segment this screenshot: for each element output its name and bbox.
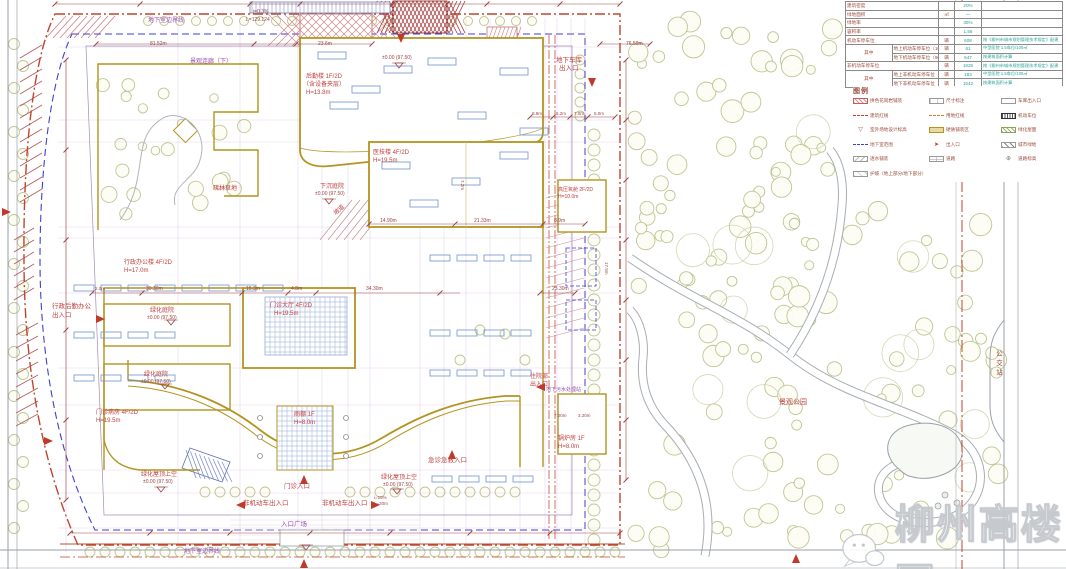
table-cell — [982, 27, 1063, 36]
entrance-arrow — [2, 208, 11, 216]
drawing-shape — [806, 65, 815, 74]
drawing-shape — [951, 266, 963, 278]
drawing-shape — [668, 17, 687, 36]
drawing-shape — [649, 527, 669, 547]
drawing-shape — [369, 142, 543, 227]
drawing-shape — [9, 347, 20, 358]
drawing-shape — [175, 547, 185, 557]
table-cell: 547 — [955, 53, 982, 62]
legend-swatch-cross — [929, 156, 944, 162]
drawing-shape — [74, 332, 94, 338]
legend-swatch-hatchred — [853, 98, 868, 104]
drawing-shape — [280, 547, 290, 557]
drawing-shape — [733, 456, 768, 491]
drawing-shape — [344, 454, 349, 459]
drawing-shape — [721, 27, 732, 38]
drawing-shape — [635, 222, 647, 234]
drawing-shape — [496, 17, 505, 26]
drawing-shape — [490, 547, 500, 557]
drawing-shape — [344, 435, 349, 440]
drawing-shape — [664, 492, 682, 510]
drawing-shape — [630, 310, 708, 556]
drawing-shape — [385, 547, 395, 557]
drawing-shape — [450, 487, 460, 497]
drawing-shape — [990, 320, 1004, 442]
legend-swatch-blueline — [853, 144, 868, 145]
drawing-shape — [405, 487, 415, 497]
drawing-shape — [712, 79, 726, 93]
drawing-shape — [936, 527, 958, 549]
drawing-shape — [277, 406, 333, 470]
drawing-shape — [9, 391, 20, 402]
legend-item-label: 室外场地设计标高 — [870, 127, 907, 133]
legend-item: 建筑红线 — [853, 113, 888, 119]
legend-item: 硬质铺装区 — [929, 127, 969, 133]
legend-swatch-diag — [1001, 142, 1016, 148]
legend-item-label: 道路 — [946, 156, 955, 162]
indicators-table: 建筑密度20%绿地面积㎡—绿地率35%容积率1.56机动车停车位辆608按《柳州… — [845, 1, 1063, 88]
legend-item-label: 机动车位 — [1018, 113, 1036, 119]
drawing-shape — [935, 503, 941, 509]
drawing-shape — [258, 435, 263, 440]
drawing-shape — [588, 159, 600, 171]
drawing-shape — [960, 410, 989, 439]
drawing-shape — [988, 464, 1008, 484]
legend-item: 机动车位 — [1001, 113, 1036, 119]
drawing-shape — [738, 344, 748, 354]
drawing-shape — [888, 423, 963, 478]
drawing-shape — [344, 416, 349, 421]
drawing-shape — [588, 369, 600, 381]
drawing-shape — [9, 127, 20, 138]
drawing-shape — [817, 454, 838, 475]
drawing-shape — [310, 547, 320, 557]
drawing-shape — [588, 279, 600, 291]
drawing-shape — [116, 164, 129, 177]
drawing-shape — [840, 530, 853, 543]
drawing-shape — [272, 17, 281, 26]
drawing-shape — [932, 254, 947, 269]
table-cell: 608 — [955, 36, 982, 45]
drawing-shape — [130, 547, 140, 557]
drawing-shape — [484, 255, 504, 261]
drawing-shape — [520, 355, 530, 365]
drawing-shape — [945, 327, 961, 343]
legend-item: ▽室外场地设计标高 — [853, 127, 907, 133]
drawing-shape — [745, 232, 767, 254]
drawing-shape — [528, 17, 537, 26]
drawing-shape — [85, 547, 95, 557]
table-cell — [939, 19, 955, 28]
drawing-shape — [355, 547, 365, 557]
drawing-shape — [9, 479, 20, 490]
drawing-shape — [465, 487, 475, 497]
drawing-shape — [575, 83, 585, 93]
drawing-shape — [575, 97, 585, 107]
drawing-shape — [9, 215, 20, 226]
table-cell: 其中 — [846, 44, 893, 61]
drawing-shape — [788, 527, 809, 548]
table-cell: — — [955, 10, 982, 19]
drawing-shape — [546, 268, 584, 278]
drawing-shape — [588, 309, 600, 321]
drawing-shape — [961, 250, 982, 271]
drawing-shape — [588, 459, 600, 471]
legend-swatch-dark — [1001, 113, 1016, 119]
drawing-shape — [190, 547, 200, 557]
drawing-shape — [958, 295, 973, 310]
table-cell: 辆 — [939, 44, 955, 53]
legend-title: 图例 — [853, 86, 1065, 96]
drawing-shape — [122, 79, 135, 92]
legend-item-label: 尺寸标注 — [946, 98, 964, 104]
drawing-shape — [588, 144, 600, 156]
drawing-shape — [835, 504, 844, 513]
legend-item-label: 出入口 — [946, 142, 960, 148]
drawing-shape — [74, 375, 94, 381]
drawing-shape — [224, 17, 233, 26]
drawing-shape — [208, 17, 217, 26]
table-cell: 按建筑面积计算 — [982, 53, 1063, 62]
legend-item-label: 道路标高 — [1018, 156, 1036, 162]
drawing-shape — [475, 547, 485, 557]
drawing-shape — [986, 347, 998, 359]
drawing-shape — [20, 129, 42, 142]
drawing-shape — [430, 255, 450, 261]
drawing-shape — [220, 547, 230, 557]
drawing-shape — [732, 27, 749, 44]
table-cell: 35% — [955, 19, 982, 28]
table-cell: 建筑密度 — [846, 2, 939, 11]
drawing-shape — [20, 45, 42, 58]
legend-swatch-glyph: ▽ — [853, 127, 868, 133]
drawing-shape — [138, 104, 147, 113]
drawing-shape — [575, 69, 585, 79]
drawing-shape — [238, 119, 251, 132]
legend-item-label: 建筑红线 — [870, 113, 888, 119]
table-cell: 地上机动车停车位（10%） — [892, 44, 939, 53]
drawing-shape — [18, 237, 29, 248]
drawing-shape — [588, 489, 600, 501]
drawing-shape — [649, 482, 666, 499]
drawing-shape — [480, 487, 490, 497]
drawing-shape — [460, 547, 470, 557]
drawing-shape — [641, 149, 657, 165]
legend-item: ➤出入口 — [929, 142, 960, 148]
legend-item-label: 护坡（地上部分/地下部分） — [870, 171, 926, 177]
site-plan: 地下室边界线i=0.3%L=129.12481.52m23.6m76.59m景观… — [0, 0, 1066, 569]
drawing-shape — [588, 354, 600, 366]
drawing-shape — [942, 492, 948, 498]
drawing-shape — [227, 181, 242, 196]
entrance-arrow — [588, 78, 596, 87]
drawing-shape — [565, 547, 575, 557]
drawing-shape — [215, 487, 225, 497]
drawing-shape — [9, 83, 20, 94]
drawing-shape — [20, 141, 42, 154]
drawing-shape — [706, 404, 722, 420]
drawing-shape — [975, 333, 986, 344]
drawing-shape — [445, 547, 455, 557]
drawing-shape — [160, 547, 170, 557]
drawing-shape — [101, 186, 117, 202]
drawing-shape — [245, 487, 255, 497]
drawing-shape — [723, 527, 732, 536]
drawing-shape — [188, 181, 203, 196]
drawing-shape — [158, 88, 169, 99]
drawing-shape — [588, 264, 600, 276]
drawing-shape — [320, 200, 352, 240]
drawing-shape — [432, 476, 452, 482]
table-cell: 1.56 — [955, 27, 982, 36]
table-cell: 辆 — [939, 70, 955, 79]
drawing-shape — [104, 304, 230, 346]
drawing-shape — [680, 272, 693, 285]
drawing-shape — [807, 238, 819, 250]
drawing-shape — [588, 129, 600, 141]
legend-item: 用地红线 — [929, 113, 964, 119]
drawing-shape — [970, 213, 992, 235]
table-cell: 61 — [955, 44, 982, 53]
legend-swatch-redline — [853, 115, 868, 116]
drawing-shape — [459, 476, 479, 482]
drawing-shape — [546, 318, 584, 328]
drawing-shape — [805, 261, 814, 270]
drawing-shape — [435, 487, 445, 497]
table-row: 绿地率35% — [846, 19, 1063, 28]
drawing-shape — [763, 452, 782, 471]
drawing-shape — [747, 385, 781, 419]
drawing-shape — [430, 330, 450, 336]
drawing-shape — [867, 523, 888, 544]
drawing-shape — [511, 255, 531, 261]
drawing-shape — [640, 201, 654, 215]
legend-swatch-check — [853, 156, 868, 162]
drawing-shape — [676, 234, 709, 267]
drawing-shape — [16, 401, 38, 413]
table-cell: 非机动车停车位 — [846, 62, 939, 71]
drawing-shape — [176, 17, 185, 26]
drawing-shape — [258, 454, 263, 459]
drawing-shape — [115, 547, 125, 557]
legend-swatch-roadel: ⊕ — [1001, 156, 1016, 162]
entrance-arrow — [371, 501, 380, 509]
drawing-shape — [510, 487, 520, 497]
table-cell: ㎡ — [939, 10, 955, 19]
drawing-shape — [9, 171, 20, 182]
legend-item: 尺寸标注 — [929, 98, 964, 104]
drawing-shape — [455, 355, 465, 365]
table-cell: 绿地面积 — [846, 10, 939, 19]
legend-item-label: 地下室范围 — [870, 142, 893, 148]
drawing-shape — [295, 547, 305, 557]
drawing-shape — [889, 352, 904, 367]
legend-item-label: 车库出入口 — [1018, 98, 1041, 104]
drawing-shape — [9, 435, 20, 446]
drawing-shape — [656, 204, 666, 214]
drawing-shape — [546, 298, 584, 308]
legend-item-label: 绿化屋面 — [1018, 127, 1036, 133]
drawing-shape — [258, 416, 263, 421]
drawing-shape — [16, 336, 38, 348]
entrance-arrow — [44, 437, 53, 445]
drawing-shape — [9, 39, 20, 50]
legend-swatch-orangeline — [929, 115, 944, 116]
drawing-shape — [115, 138, 127, 150]
legend-swatch-glyph: ➤ — [929, 142, 944, 148]
drawing-shape — [18, 501, 29, 512]
drawing-shape — [18, 457, 29, 468]
drawing-shape — [636, 231, 655, 250]
drawing-shape — [653, 51, 665, 63]
drawing-shape — [205, 547, 215, 557]
drawing-shape — [716, 342, 731, 357]
drawing-shape — [588, 519, 600, 531]
indicators-table-grid: 建筑密度20%绿地面积㎡—绿地率35%容积率1.56机动车停车位辆608按《柳州… — [845, 1, 1063, 88]
drawing-shape — [947, 366, 956, 375]
drawing-shape — [145, 547, 155, 557]
drawing-shape — [588, 234, 600, 246]
drawing-shape — [588, 504, 600, 516]
drawing-shape — [546, 248, 584, 258]
drawing-shape — [991, 367, 1002, 378]
drawing-shape — [667, 155, 687, 175]
table-cell: 其中 — [846, 70, 893, 87]
drawing-shape — [400, 547, 410, 557]
drawing-shape — [665, 190, 675, 200]
drawing-shape — [721, 100, 744, 123]
drawing-shape — [550, 547, 560, 557]
drawing-shape — [328, 200, 360, 240]
entrance-arrow — [448, 450, 456, 459]
drawing-shape — [336, 200, 368, 240]
legend-item-label: 用地红线 — [946, 113, 964, 119]
drawing-shape — [182, 448, 230, 482]
drawing-shape — [771, 286, 785, 300]
drawing-shape — [661, 231, 673, 243]
legend-item: 地下室范围 — [853, 142, 893, 148]
table-cell — [982, 2, 1063, 11]
legend-item-label: 硬质铺装区 — [946, 127, 969, 133]
drawing-shape — [781, 55, 802, 76]
drawing-shape — [588, 474, 600, 486]
legend-item: 拼色花岗岩铺装 — [853, 98, 902, 104]
drawing-shape — [771, 167, 780, 176]
table-row: 容积率1.56 — [846, 27, 1063, 36]
table-cell: 绿地率 — [846, 19, 939, 28]
drawing-shape — [210, 94, 219, 103]
drawing-shape — [546, 328, 584, 338]
drawing-shape — [842, 225, 862, 245]
drawing-shape — [512, 17, 521, 26]
drawing-shape — [595, 547, 605, 557]
table-cell: 辆 — [939, 53, 955, 62]
drawing-shape — [821, 40, 836, 55]
drawing-shape — [765, 437, 776, 448]
drawing-shape — [480, 17, 489, 26]
table-row: 其中地上非机动车停车位（10%）辆183中型医院 1.5车位/100㎡ — [846, 70, 1063, 79]
drawing-shape — [20, 177, 42, 190]
drawing-shape — [325, 199, 333, 204]
table-cell — [982, 19, 1063, 28]
drawing-shape — [821, 162, 835, 176]
entrance-arrow — [300, 559, 308, 568]
drawing-shape — [765, 61, 776, 72]
drawing-shape — [20, 165, 42, 178]
drawing-shape — [717, 137, 736, 156]
drawing-shape — [230, 487, 240, 497]
drawing-shape — [192, 195, 208, 211]
drawing-shape — [157, 487, 165, 492]
drawing-shape — [750, 146, 762, 158]
drawing-shape — [915, 318, 932, 335]
legend-item-label: 透水铺装 — [870, 156, 888, 162]
drawing-shape — [495, 487, 505, 497]
legend-item: 道路 — [929, 156, 955, 162]
legend-item: ⊕道路标高 — [1001, 156, 1036, 162]
drawing-shape — [9, 523, 20, 534]
legend-item: 透水铺装 — [853, 156, 888, 162]
drawing-shape — [631, 278, 646, 293]
drawing-shape — [20, 117, 42, 130]
drawing-shape — [20, 81, 42, 94]
legend-item-label: 城市绿地 — [1018, 142, 1036, 148]
drawing-shape — [789, 218, 799, 228]
drawing-shape — [983, 447, 1001, 465]
drawing-shape — [121, 91, 131, 101]
legend-swatch-green — [1001, 127, 1016, 133]
drawing-shape — [912, 385, 924, 397]
drawing-shape — [464, 17, 473, 26]
table-row: 其中地上机动车停车位（10%）辆61中型医院 1.5车位/100㎡ — [846, 44, 1063, 53]
table-cell: 183 — [955, 70, 982, 79]
drawing-shape — [457, 370, 477, 376]
table-cell: 按《柳州市城市规划管理技术规定》配建 — [982, 36, 1063, 45]
drawing-shape — [751, 352, 761, 362]
table-row: 绿地面积㎡— — [846, 10, 1063, 19]
drawing-shape — [804, 496, 822, 514]
drawing-shape — [265, 297, 347, 355]
drawing-shape — [457, 255, 477, 261]
drawing-shape — [430, 370, 450, 376]
drawing-shape — [280, 530, 344, 546]
drawing-shape — [360, 487, 370, 497]
drawing-shape — [430, 547, 440, 557]
drawing-shape — [160, 17, 169, 26]
drawing-shape — [699, 325, 717, 343]
table-row: 建筑密度20% — [846, 2, 1063, 11]
table-row: 机动车停车位辆608按《柳州市城市规划管理技术规定》配建 — [846, 36, 1063, 45]
drawing-shape — [74, 285, 94, 291]
drawing-shape — [265, 547, 275, 557]
table-cell: 地下机动车停车位（90%） — [892, 53, 939, 62]
table-cell: 1825 — [955, 62, 982, 71]
legend-item: 绿化屋面 — [1001, 127, 1036, 133]
drawing-shape — [575, 111, 585, 121]
drawing-shape — [535, 547, 545, 557]
drawing-shape — [457, 330, 477, 336]
drawing-shape — [727, 276, 737, 286]
legend-item-label: 拼色花岗岩铺装 — [870, 98, 902, 104]
drawing-shape — [759, 504, 779, 524]
drawing-shape — [161, 143, 174, 156]
table-cell — [939, 27, 955, 36]
drawing-shape — [822, 19, 842, 39]
park-path-layer — [630, 150, 980, 556]
drawing-shape — [628, 525, 644, 541]
drawing-shape — [200, 487, 210, 497]
drawing-shape — [546, 258, 584, 268]
